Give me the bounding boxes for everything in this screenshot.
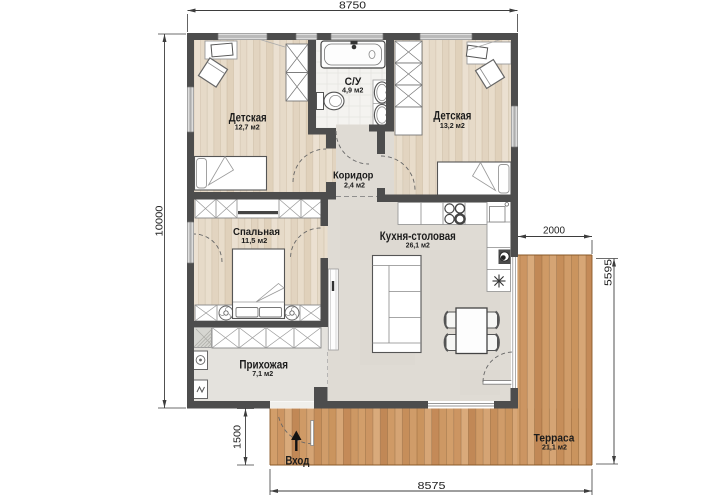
svg-text:2000: 2000 — [543, 225, 565, 236]
svg-text:8750: 8750 — [339, 1, 367, 12]
svg-text:5595: 5595 — [603, 258, 614, 286]
svg-text:11,5 м2: 11,5 м2 — [241, 236, 267, 245]
svg-text:12,7 м2: 12,7 м2 — [235, 122, 260, 131]
svg-text:1500: 1500 — [233, 425, 244, 449]
svg-text:26,1 м2: 26,1 м2 — [406, 241, 430, 250]
svg-text:2,4 м2: 2,4 м2 — [344, 181, 365, 190]
svg-text:4,9 м2: 4,9 м2 — [342, 86, 364, 95]
svg-text:Вход: Вход — [285, 453, 309, 467]
svg-text:21,1 м2: 21,1 м2 — [542, 443, 567, 452]
svg-text:13,2 м2: 13,2 м2 — [440, 121, 465, 130]
svg-text:7,1 м2: 7,1 м2 — [252, 369, 273, 378]
svg-text:10000: 10000 — [154, 205, 165, 236]
svg-text:8575: 8575 — [418, 481, 447, 492]
